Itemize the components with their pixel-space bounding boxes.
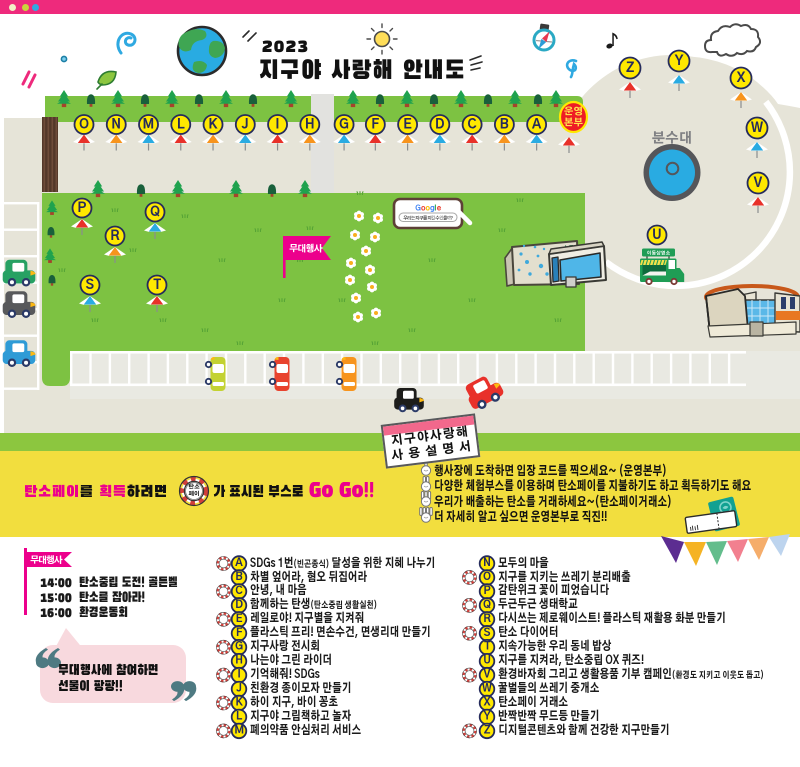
svg-text:V: V: [754, 176, 763, 190]
svg-text:R: R: [110, 229, 120, 243]
svg-text:V: V: [484, 670, 491, 681]
svg-text:Q: Q: [483, 600, 491, 611]
svg-text:분수대: 분수대: [652, 131, 693, 146]
svg-text:J: J: [241, 118, 249, 132]
svg-text:L: L: [177, 118, 185, 132]
svg-text:O: O: [483, 572, 491, 583]
svg-text:R: R: [483, 614, 491, 625]
svg-text:S: S: [484, 628, 491, 639]
svg-text:P: P: [483, 586, 490, 597]
svg-text:운영: 운영: [564, 106, 583, 117]
svg-text:Q: Q: [150, 205, 160, 219]
svg-text:K: K: [235, 698, 243, 709]
svg-text:F: F: [371, 118, 379, 132]
svg-text:I: I: [276, 118, 280, 132]
svg-text:Y: Y: [674, 54, 684, 68]
svg-text:D: D: [435, 118, 445, 132]
svg-text:X: X: [483, 698, 491, 709]
svg-text:Z: Z: [626, 61, 634, 75]
svg-text:U: U: [652, 228, 662, 242]
svg-text:S: S: [86, 278, 94, 292]
svg-text:B: B: [500, 118, 509, 132]
svg-text:Z: Z: [484, 725, 491, 736]
svg-text:본부: 본부: [564, 117, 583, 128]
svg-text:U: U: [483, 656, 491, 667]
svg-text:K: K: [208, 118, 218, 132]
svg-text:A: A: [531, 118, 542, 132]
svg-text:X: X: [737, 71, 746, 85]
svg-text:C: C: [467, 118, 477, 132]
svg-text:D: D: [235, 600, 243, 611]
svg-text:무대행사: 무대행사: [30, 554, 63, 565]
svg-text:C: C: [235, 586, 243, 597]
svg-text:N: N: [483, 558, 491, 569]
svg-text:I: I: [237, 670, 240, 681]
svg-text:M: M: [143, 118, 155, 132]
svg-text:P: P: [78, 201, 87, 215]
svg-text:G: G: [339, 118, 349, 132]
svg-text:H: H: [305, 118, 315, 132]
svg-text:B: B: [235, 572, 242, 583]
svg-text:L: L: [236, 711, 243, 722]
svg-text:M: M: [234, 725, 244, 736]
svg-text:E: E: [403, 118, 411, 132]
svg-text:F: F: [236, 628, 243, 639]
svg-text:T: T: [484, 642, 491, 653]
svg-text:무대행사: 무대행사: [289, 243, 323, 254]
svg-text:J: J: [235, 684, 242, 695]
svg-text:Y: Y: [483, 711, 491, 722]
svg-text:Google: Google: [415, 204, 441, 213]
svg-text:이동상영소: 이동상영소: [647, 251, 671, 256]
svg-text:G: G: [235, 642, 243, 653]
svg-text:페이: 페이: [188, 490, 199, 497]
svg-text:T: T: [153, 278, 162, 292]
svg-text:N: N: [111, 118, 121, 132]
svg-text:O: O: [79, 118, 89, 132]
svg-text:E: E: [236, 614, 243, 625]
svg-text:우리는 지구를 지킬 수 있을까?: 우리는 지구를 지킬 수 있을까?: [403, 215, 453, 222]
svg-text:A: A: [234, 558, 243, 569]
svg-text:W: W: [751, 121, 764, 135]
svg-text:W: W: [482, 684, 492, 695]
svg-text:H: H: [235, 656, 243, 667]
